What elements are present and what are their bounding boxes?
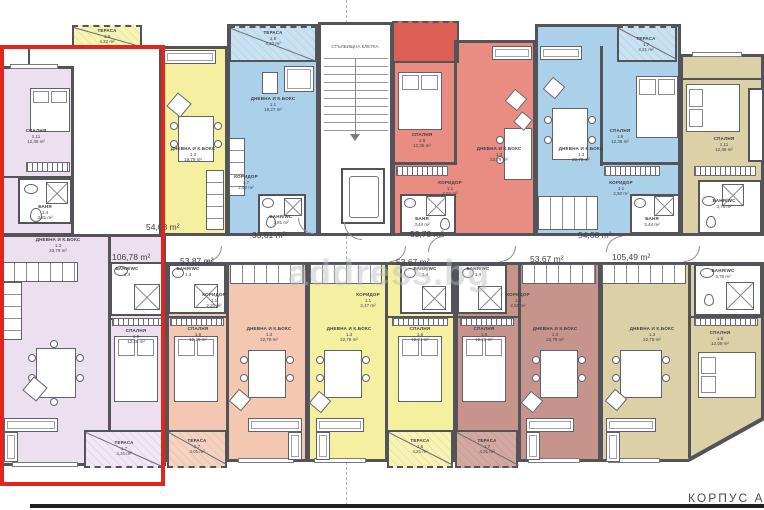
room-label-terrace: ТЕРАСА1.74,21 m²: [616, 36, 676, 53]
stairwell-label: СТЪЛБИЩНА КЛЕТКА: [322, 44, 388, 49]
wardrobe: [460, 318, 514, 326]
chair: [496, 136, 504, 144]
dining-table: [324, 350, 362, 398]
bed: [698, 352, 756, 398]
sheet-bottom-line: [30, 504, 764, 508]
sofa: [288, 432, 302, 460]
room-label-corridor: КОРИДОР1.72,50 m²: [222, 174, 270, 191]
kitchen-counter: [538, 196, 598, 230]
sink: [404, 198, 416, 208]
dining-table: [540, 350, 578, 398]
chair: [588, 116, 596, 124]
chair: [662, 356, 670, 364]
highlighted-apartment-outline[interactable]: [0, 45, 165, 486]
room-label-corridor: КОРИДОР1.12,20 m²: [196, 292, 232, 309]
area-label-brown: 53,67 m²: [530, 254, 564, 264]
chair: [662, 374, 670, 382]
chair: [362, 356, 370, 364]
wardrobe: [604, 166, 660, 176]
room-label-corridor: КОРИДОР1.12,50 m²: [500, 292, 536, 309]
room-label-living: ДНЕВНА И К.БОКС1.322,78 m²: [524, 326, 586, 343]
room-label-living: ДНЕВНА И К.БОКС1.322,75 m²: [620, 326, 684, 343]
sofa: [606, 418, 656, 432]
chair: [286, 356, 294, 364]
room-label-bath: БАНЯ3,44 m²: [402, 216, 442, 227]
sofa: [316, 432, 330, 460]
sofa: [164, 50, 216, 64]
terrace-red: [392, 21, 459, 63]
chair: [240, 356, 248, 364]
partition-wall: [688, 262, 691, 458]
stairs: [324, 58, 388, 134]
room-label-living: ДНЕВНА И К.БОКС1.322,78 m²: [468, 146, 530, 163]
chair: [214, 122, 222, 130]
room-label-living: ДНЕВНА И К.БОКС1.319,79 m²: [158, 146, 228, 163]
room-label-bath: БАНЯ/WC1.4: [170, 266, 206, 277]
room-label-bath: БАНЯ3,44 m²: [630, 216, 674, 227]
window: [692, 52, 742, 57]
kitchen-counter: [602, 264, 686, 284]
bed: [686, 84, 740, 132]
chair: [286, 374, 294, 382]
room-label-bedroom: СПАЛНЯ1.1112,35 m²: [698, 136, 750, 153]
room-label-living: ДНЕВНА И К.БОКС1.322,78 m²: [550, 146, 612, 163]
room-label-corridor: КОРИДОР1.12,84 m²: [430, 180, 470, 197]
chair: [578, 356, 586, 364]
coffee-table: [262, 72, 278, 94]
chair: [544, 116, 552, 124]
dining-table: [248, 350, 286, 398]
area-label-blue-1: 33,61 m²: [252, 230, 286, 240]
bed: [398, 72, 442, 130]
bed: [462, 336, 506, 402]
toilet: [704, 294, 714, 306]
sofa: [248, 418, 302, 432]
sink: [634, 198, 646, 208]
bed: [398, 336, 442, 402]
chair: [316, 374, 324, 382]
shower: [654, 196, 674, 216]
sofa: [526, 432, 540, 460]
bed: [636, 76, 678, 138]
room-label-living: ДНЕВНА И К.БОКС1.322,78 m²: [318, 326, 380, 343]
sofa: [316, 418, 364, 432]
wardrobe: [396, 166, 448, 176]
chair: [362, 374, 370, 382]
door-arc: [500, 246, 516, 262]
chair: [316, 356, 324, 364]
room-label-living: ДНЕВНА И К.БОКС1.322,78 m²: [238, 326, 300, 343]
chair: [240, 374, 248, 382]
area-label-red: 53,79 m²: [410, 229, 444, 239]
elevator-cab: [349, 176, 379, 218]
room-label-bedroom: СПАЛНЯ1.812,35 m²: [600, 128, 640, 145]
room-label-bedroom: СПАЛНЯ1.612,26 m²: [462, 326, 506, 343]
chair: [170, 122, 178, 130]
sofa: [284, 66, 314, 92]
toilet: [706, 216, 716, 228]
bed: [174, 336, 218, 402]
wardrobe: [392, 318, 448, 326]
chair: [544, 136, 552, 144]
sofa: [540, 46, 582, 60]
wardrobe: [170, 318, 224, 326]
sink: [262, 198, 274, 208]
kitchen-counter: [522, 264, 596, 284]
room-label-bath: БАНЯ/WC3,75 m²: [700, 268, 746, 279]
room-label-terrace: ТЕРАСА1.84,22 m²: [77, 28, 137, 45]
chair: [612, 374, 620, 382]
chair: [612, 356, 620, 364]
room-label-corridor: КОРИДОР1.12,50 m²: [600, 180, 642, 197]
balcony-right: [748, 88, 764, 162]
chair: [532, 356, 540, 364]
room-label-bath: БАНЯ/WC3,75 m²: [700, 198, 748, 209]
watermark: address.bg: [288, 252, 490, 294]
partition-wall: [600, 162, 681, 165]
chair: [588, 136, 596, 144]
room-label-terrace: ТЕРАСА1.74,01 m²: [168, 438, 226, 455]
room-label-bath: БАНЯ/WC3,81 m²: [258, 214, 304, 225]
chair: [532, 374, 540, 382]
wardrobe: [694, 318, 758, 326]
room-label-corridor: КОРИДОР1.12,47 m²: [350, 292, 386, 309]
floorplan-canvas: СТЪЛБИЩНА КЛЕТКА 54,08 m² 33,61 m² 53,79…: [0, 0, 764, 510]
stairs-direction-icon: [350, 134, 360, 146]
partition-wall: [680, 78, 764, 80]
area-label-blue-2: 54,08 m²: [578, 230, 612, 240]
wardrobe: [694, 166, 756, 176]
room-label-terrace: ТЕРАСА1.74,31 m²: [458, 438, 516, 455]
area-label-beige: 105,49 m²: [612, 252, 650, 262]
sofa: [526, 418, 574, 432]
room-label-bedroom: СПАЛНЯ1.812,35 m²: [396, 132, 448, 149]
room-label-bedroom: СПАЛНЯ1.612,04 m²: [398, 326, 442, 343]
room-label-terrace: ТЕРАСА1.64,21 m²: [390, 438, 450, 455]
building-label: КОРПУС А: [688, 491, 764, 505]
area-label-salmon: 53,87 m²: [180, 256, 214, 266]
sofa: [492, 46, 532, 60]
stairs-divider: [355, 58, 356, 134]
window: [238, 458, 294, 463]
room-label-living: ДНЕВНА И К.БОКС1.118,27 m²: [234, 96, 312, 113]
room-label-bedroom: СПАЛНЯ1.612,26 m²: [176, 326, 220, 343]
shower: [726, 282, 754, 310]
shower: [426, 196, 446, 216]
partition-wall: [392, 162, 457, 165]
room-label-terrace: ТЕРАСА1.84,22 m²: [232, 30, 314, 47]
dining-table: [620, 350, 662, 398]
door-arc: [684, 246, 700, 262]
sofa: [606, 432, 620, 462]
partition-wall: [454, 40, 457, 165]
room-label-bedroom: СПАЛНЯ1.512,09 m²: [692, 330, 748, 347]
chair: [578, 374, 586, 382]
